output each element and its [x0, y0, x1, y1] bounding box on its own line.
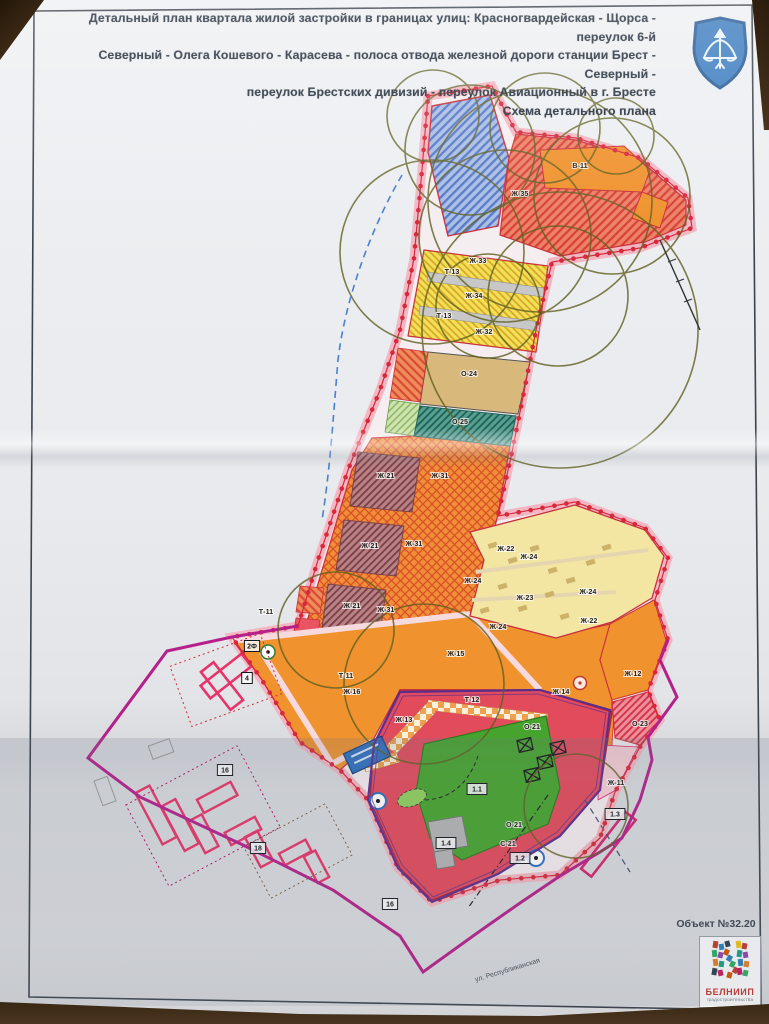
- zone-label: С-21: [500, 839, 516, 848]
- zone-label: Ж-22: [580, 616, 598, 625]
- object-number: Объект №32.20: [668, 918, 764, 930]
- title-line: Детальный план квартала жилой застройки …: [56, 9, 656, 46]
- photo-of-plan-sheet: В-11Ж-35Ж-33Ж-34Ж-32О-24О-25Ж-31Ж-31Ж-31…: [0, 0, 769, 1024]
- zone-o24-tan: [420, 352, 530, 414]
- zone-label: О-25: [452, 417, 468, 426]
- zone-label: Ж-31: [431, 471, 449, 480]
- zone-label: Ж-11: [607, 778, 625, 787]
- zone-label: Ж-34: [465, 291, 483, 300]
- index-label: 16: [221, 768, 229, 775]
- zone-label: О-23: [632, 719, 648, 728]
- zone-label: Ж-24: [489, 622, 507, 631]
- logo-box: БЕЛНИИП градостроительства: [699, 936, 761, 1008]
- index-label: 1.1: [472, 787, 482, 794]
- zone-label: Ж-31: [377, 605, 395, 614]
- zone-label: Ж-24: [579, 587, 597, 596]
- zone-label: Т-11: [259, 607, 273, 616]
- index-label: 1.3: [610, 812, 620, 819]
- zone-label: Ж-24: [520, 552, 538, 561]
- zone-label: О-21: [524, 722, 540, 731]
- zone-label: Ж-31: [405, 539, 423, 548]
- street-label: ул. Республиканская: [474, 956, 541, 983]
- belniip-logo-name: БЕЛНИИП: [700, 987, 760, 997]
- zone-label: Т-11: [339, 671, 353, 680]
- zone-label: Ж-24: [464, 576, 482, 585]
- index-label: 2Ф: [247, 644, 257, 651]
- belniip-mosaic-icon: [707, 939, 753, 981]
- zone-label: Ж-22: [497, 544, 515, 553]
- street-labels-layer: ул. Республиканская: [474, 956, 541, 983]
- zone-label: Ж-33: [469, 256, 487, 265]
- brest-coat-of-arms-icon: [690, 16, 750, 92]
- index-label: 16: [386, 902, 394, 909]
- title-line: переулок Брестских дивизий - переулок Ав…: [56, 83, 656, 102]
- zone-label: Ж-35: [511, 189, 529, 198]
- zone-label: Ж-21: [361, 541, 379, 550]
- title-line: Северный - Олега Кошевого - Карасева - п…: [56, 46, 656, 83]
- index-label: 18: [254, 846, 262, 853]
- zone-yellow-bands: [408, 250, 548, 352]
- zone-label: Ж-14: [552, 687, 570, 696]
- zone-label: Ж-12: [624, 669, 642, 678]
- zone-zh21: [350, 452, 420, 512]
- gray-building: [434, 849, 455, 869]
- zone-label: Ж-32: [475, 327, 493, 336]
- belniip-logo-subtitle: градостроительства: [700, 997, 760, 1002]
- zone-label: Ж-16: [343, 687, 361, 696]
- index-label: 4: [245, 676, 249, 683]
- zone-label: В-11: [572, 161, 587, 170]
- zone-label: Ж-13: [395, 715, 413, 724]
- zone-small-red: [296, 586, 324, 614]
- zone-label: Ж-21: [343, 601, 361, 610]
- index-label: 1.2: [515, 856, 525, 863]
- zone-label: О-21: [506, 820, 522, 829]
- detailed-plan-map: В-11Ж-35Ж-33Ж-34Ж-32О-24О-25Ж-31Ж-31Ж-31…: [0, 0, 769, 1024]
- zone-label: Т-12: [465, 695, 480, 704]
- zone-label: О-24: [461, 369, 477, 378]
- zone-label: Ж-15: [447, 649, 465, 658]
- zone-label: Ж-23: [516, 593, 534, 602]
- index-label: 1.4: [441, 841, 451, 848]
- zone-label: Т-13: [445, 267, 460, 276]
- zone-label: Ж-21: [377, 471, 395, 480]
- zone-label: Т-13: [437, 311, 452, 320]
- sheet-title: Детальный план квартала жилой застройки …: [56, 9, 656, 121]
- title-line: Схема детального плана: [56, 102, 656, 121]
